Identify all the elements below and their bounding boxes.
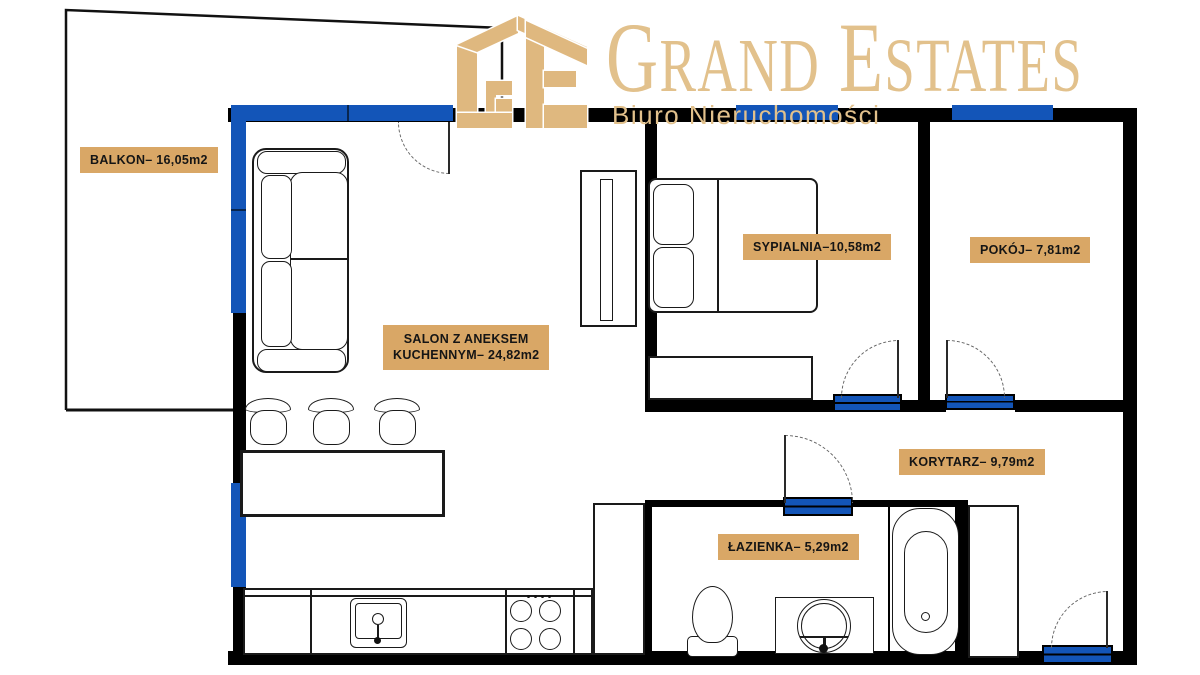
wall-bedroom-bottom [645,400,833,412]
sink-faucet [372,613,384,625]
window-mullion [347,105,349,121]
counter-divider [310,589,312,654]
door-leaf-bathroom [784,435,786,503]
counter-divider [573,589,575,654]
cooktop-knob [527,595,530,598]
room-label-korytarz: KORYTARZ– 9,79m2 [899,449,1045,475]
wall-right [1123,108,1137,665]
cooktop-knob [541,595,544,598]
brand-initial: E [839,2,884,113]
brand-monogram-icon [450,3,590,133]
wall-bath-top-left [645,500,783,507]
fridge [593,503,645,655]
sofa-cushion [261,261,292,347]
floor-plan: BALKON– 16,05m2 SALON Z ANEKSEM KUCHENNY… [0,0,1200,675]
room-label-salon-line2: KUCHENNYM– 24,82m2 [393,347,539,363]
counter-divider [505,589,507,654]
sofa-seat-divider [291,258,347,260]
room-label-salon: SALON Z ANEKSEM KUCHENNYM– 24,82m2 [383,325,549,370]
cooktop-knob [548,595,551,598]
sofa-cushion [261,175,292,259]
wall-room-bottom [1015,400,1137,412]
sink-drain [374,637,381,644]
sofa-seat [290,172,348,350]
cooktop-burner [539,628,561,650]
cooktop-burner [510,628,532,650]
door-leaf-entrance [1106,591,1108,648]
sofa-armrest-bottom [257,349,346,372]
room-label-balkon: BALKON– 16,05m2 [80,147,218,173]
wall-bath-top-right [853,500,968,507]
door-leaf-bedroom [897,340,899,398]
washbasin-faucet [819,644,828,653]
wall-bath-left [645,500,652,660]
bathtub-drain [921,612,930,621]
kitchen-island [240,450,445,517]
sofa-armrest-top [257,151,346,174]
wall-bedroom-room-divider [918,122,930,412]
hallway-closet [968,505,1019,658]
brand-initial: G [606,2,659,113]
wall-tub-partition [888,505,890,655]
wardrobe-slot [600,179,613,321]
bar-stool-seat [379,410,416,445]
bar-stool-seat [313,410,350,445]
counter-edge-line [245,595,591,597]
brand-name: GRANDESTATES [606,8,1083,108]
wall-between-doors [902,400,946,412]
room-label-salon-line1: SALON Z ANEKSEM [393,331,539,347]
bed-mattress-divider [717,180,719,311]
window-mullion [231,209,246,211]
cooktop-knob [534,595,537,598]
brand-tagline: Biuro Nieruchomości [612,100,880,131]
brand-word-rest: STATES [884,24,1083,108]
toilet-icon [692,586,733,643]
door-leaf-room [946,340,948,398]
bed-pillow [653,184,694,245]
room-label-sypialnia: SYPIALNIA–10,58m2 [743,234,891,260]
room-label-pokoj: POKÓJ– 7,81m2 [970,237,1090,263]
room-label-lazienka: ŁAZIENKA– 5,29m2 [718,534,859,560]
cooktop-burner [539,600,561,622]
bed-pillow [653,247,694,308]
bar-stool-seat [250,410,287,445]
window-salon-top [231,105,453,121]
brand-word-rest: RAND [659,24,820,108]
cooktop-burner [510,600,532,622]
dresser [648,356,813,400]
